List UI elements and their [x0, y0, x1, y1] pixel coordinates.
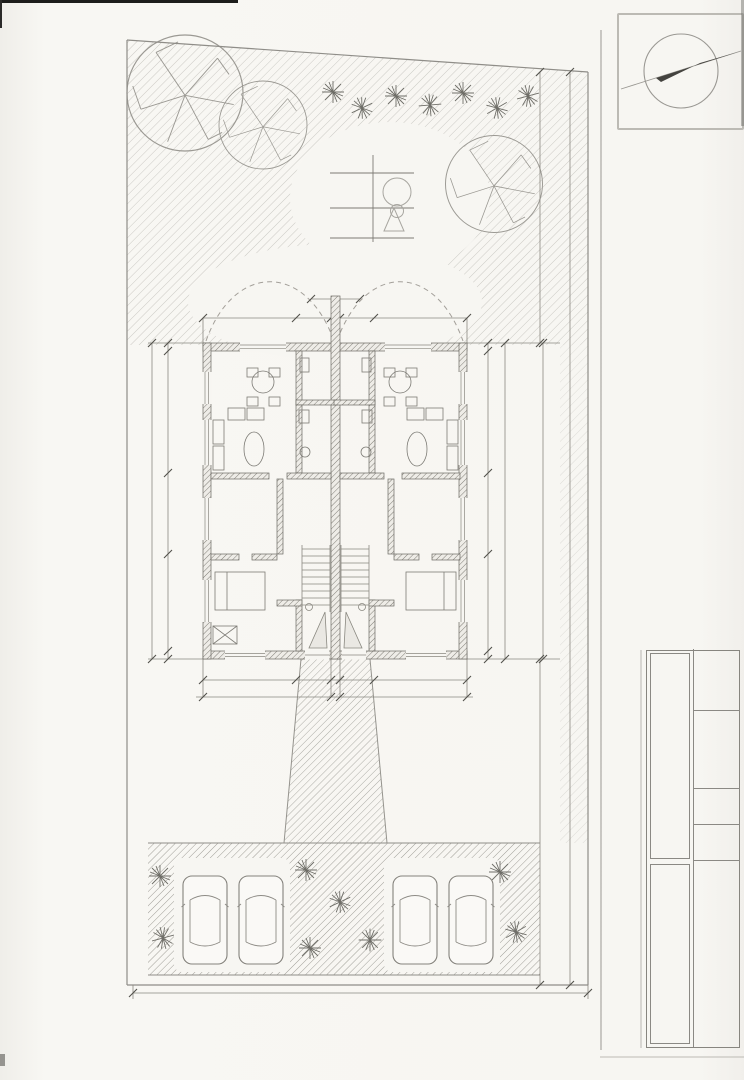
parking-area: [148, 843, 540, 975]
titleblock-datum-cell: [693, 711, 740, 789]
title-block-inner: [646, 650, 740, 1048]
titleblock-bauherr-box: [650, 653, 690, 859]
side-title-wrap: [50, 282, 130, 732]
north-arrow-box: [617, 13, 744, 130]
titleblock-flurstueck-cell: [693, 789, 740, 825]
titleblock-zeichnung-cell: [693, 861, 740, 1047]
titleblock-flur-cell: [693, 825, 740, 861]
titleblock-bauvorhaben-box: [650, 864, 690, 1044]
page-title: [50, 282, 130, 732]
titleblock-projekt-cell: [693, 649, 740, 711]
scanned-site-plan-page: [0, 0, 744, 1080]
title-block: [646, 650, 740, 1048]
driveway: [284, 659, 387, 843]
